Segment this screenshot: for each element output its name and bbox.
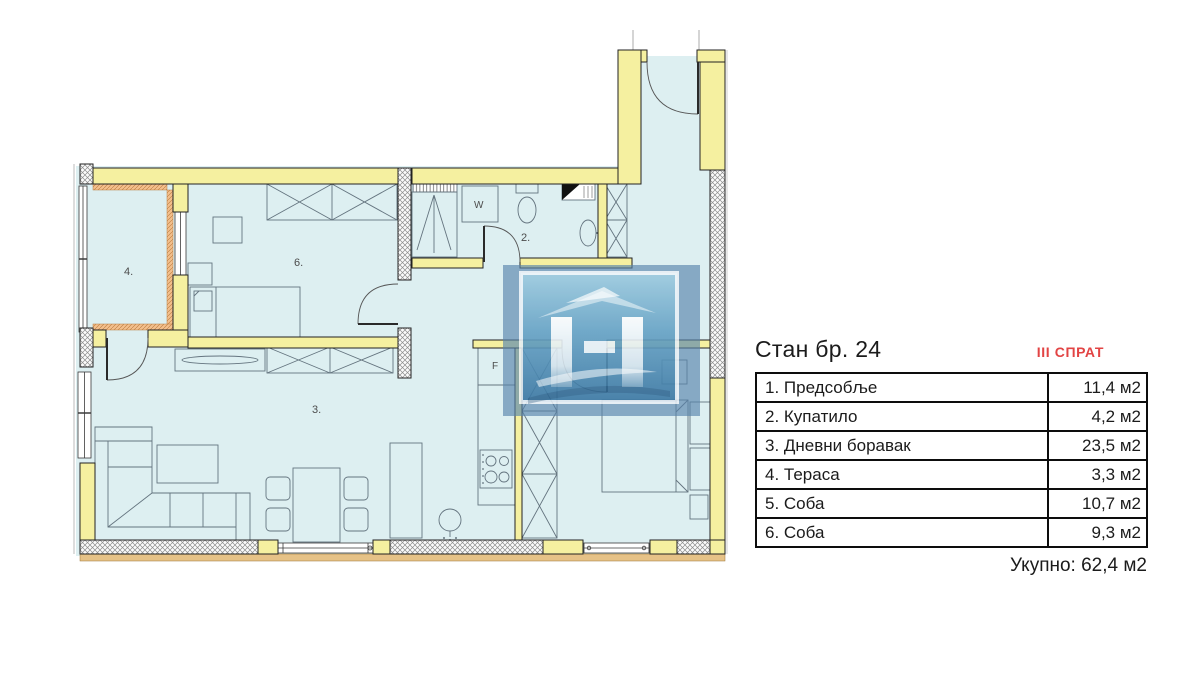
label-fridge: F [492, 361, 498, 372]
area-table: 1. Предсобље 11,4 м2 2. Купатило 4,2 м2 … [755, 372, 1148, 548]
living-left-window [78, 372, 91, 458]
bedroom5-bottom-window [584, 543, 649, 553]
room-name: 2. Купатило [757, 403, 1047, 430]
label-terrace: 4. [124, 266, 133, 278]
table-row: 3. Дневни боравак 23,5 м2 [757, 432, 1146, 461]
label-bathroom: 2. [521, 232, 530, 244]
info-panel: Стан бр. 24 III СПРАТ 1. Предсобље 11,4 … [755, 336, 1148, 577]
table-row: 1. Предсобље 11,4 м2 [757, 374, 1146, 403]
room-area: 9,3 м2 [1047, 519, 1146, 546]
label-washer: W [474, 200, 484, 211]
terrace-room6-window [175, 212, 186, 275]
label-room6: 6. [294, 257, 303, 269]
living-bottom-window [278, 543, 373, 553]
floor-badge: III СПРАТ [1037, 344, 1104, 360]
terrace-railing [79, 186, 87, 332]
table-row: 2. Купатило 4,2 м2 [757, 403, 1146, 432]
room-name: 1. Предсобље [757, 374, 1047, 401]
room-area: 10,7 м2 [1047, 490, 1146, 517]
room-name: 5. Соба [757, 490, 1047, 517]
room-area: 23,5 м2 [1047, 432, 1146, 459]
room-area: 3,3 м2 [1047, 461, 1146, 488]
total-area: Укупно: 62,4 м2 [755, 555, 1148, 577]
room-name: 3. Дневни боравак [757, 432, 1047, 459]
table-row: 6. Соба 9,3 м2 [757, 519, 1146, 546]
watermark-logo [503, 265, 700, 416]
panel-header: Стан бр. 24 III СПРАТ [755, 336, 1148, 363]
apartment-title: Стан бр. 24 [755, 336, 881, 363]
room-name: 4. Тераса [757, 461, 1047, 488]
table-row: 4. Тераса 3,3 м2 [757, 461, 1146, 490]
label-living: 3. [312, 404, 321, 416]
room-area: 11,4 м2 [1047, 374, 1146, 401]
room-name: 6. Соба [757, 519, 1047, 546]
table-row: 5. Соба 10,7 м2 [757, 490, 1146, 519]
room-area: 4,2 м2 [1047, 403, 1146, 430]
